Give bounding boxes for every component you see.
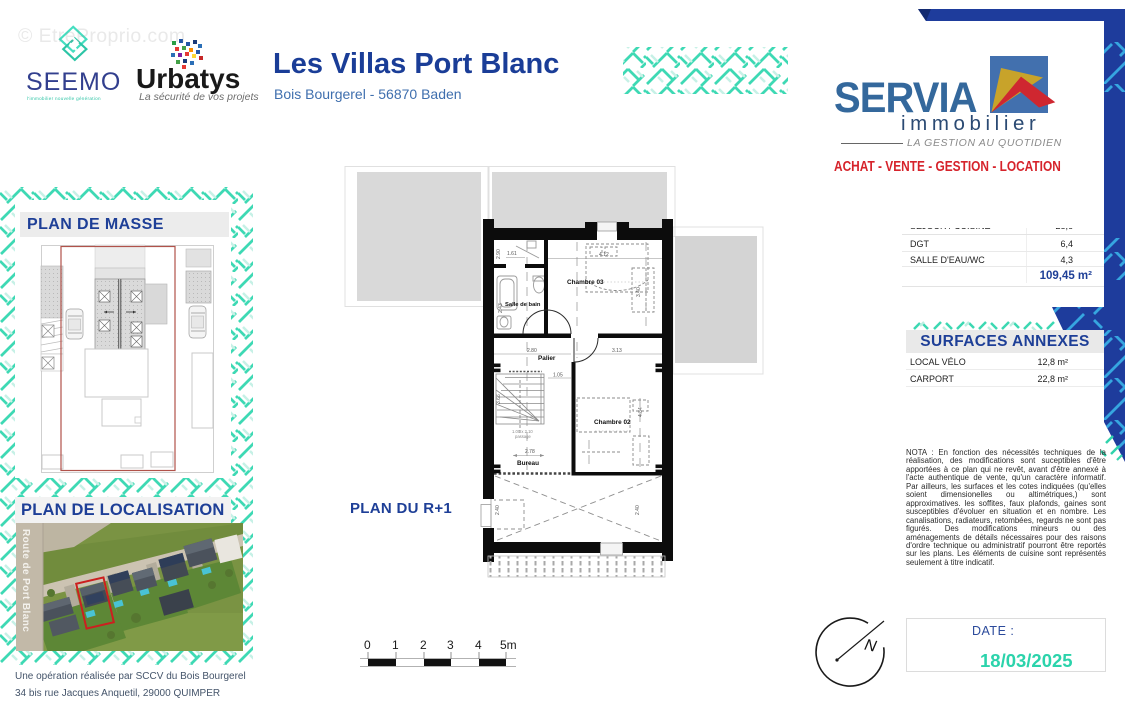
svg-text:4: 4: [475, 638, 482, 652]
svg-text:Chambre 02: Chambre 02: [594, 419, 631, 426]
svg-text:2.78: 2.78: [525, 449, 535, 455]
svg-text:2.90: 2.90: [496, 249, 502, 259]
svg-text:2.40: 2.40: [635, 505, 641, 515]
svg-text:1: 1: [392, 638, 399, 652]
svg-text:Route de Port Blanc: Route de Port Blanc: [20, 529, 31, 632]
svg-text:3.13: 3.13: [612, 348, 622, 354]
svg-text:0: 0: [364, 638, 371, 652]
svg-text:4.84: 4.84: [638, 407, 644, 417]
svg-text:2.43: 2.43: [498, 303, 504, 313]
svg-text:2.40: 2.40: [495, 505, 501, 515]
svg-text:1.61: 1.61: [507, 251, 517, 257]
svg-text:Chambre 03: Chambre 03: [567, 279, 604, 286]
svg-text:passage: passage: [515, 434, 532, 439]
svg-text:Bureau: Bureau: [517, 460, 539, 467]
svg-text:N: N: [863, 637, 878, 656]
svg-text:4.12: 4.12: [599, 252, 609, 258]
svg-text:3.40: 3.40: [636, 287, 642, 297]
svg-text:1.05: 1.05: [553, 373, 563, 379]
svg-text:5m: 5m: [500, 638, 517, 652]
svg-text:2: 2: [420, 638, 427, 652]
svg-text:3.66: 3.66: [496, 394, 502, 404]
svg-text:3: 3: [447, 638, 454, 652]
svg-text:2.80: 2.80: [527, 348, 537, 354]
svg-text:Salle de bain: Salle de bain: [505, 302, 541, 308]
svg-text:Palier: Palier: [538, 355, 556, 362]
